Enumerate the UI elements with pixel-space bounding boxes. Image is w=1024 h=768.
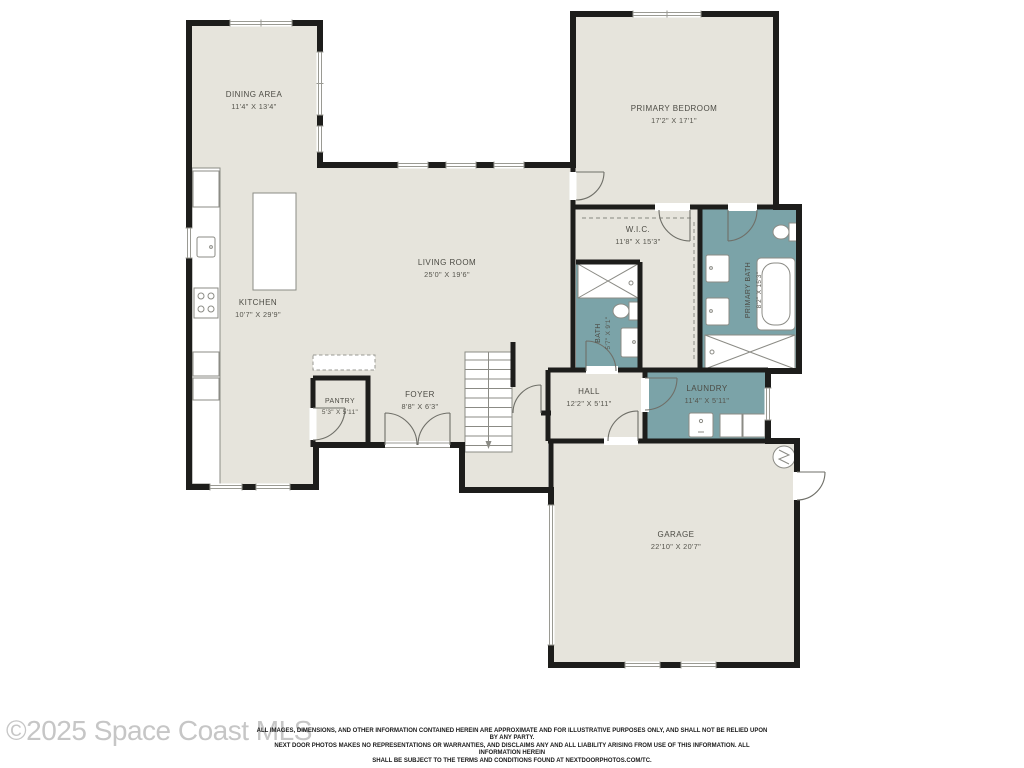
laundry-fixtures [689,413,765,437]
kitchen-counter [192,168,220,484]
disclaimer-line-3: SHALL BE SUBJECT TO THE TERMS AND CONDIT… [253,758,771,765]
fridge-nook [313,355,375,370]
footer: ©2025 Space Coast MLS ALL IMAGES, DIMENS… [0,712,1024,762]
primary-bedroom-dims: 17'2" X 17'1" [651,116,697,125]
window-laundry-right [765,388,772,420]
garage-dims: 22'10" X 20'7" [651,542,701,551]
window-kitchen-bottom-2 [256,484,290,491]
window-kitchen-left [186,228,193,258]
window-dining-right-1 [317,52,324,115]
laundry-dims: 11'4" X 5'11" [685,396,730,405]
foyer-dims: 8'8" X 6'3" [402,402,439,411]
cabinet-icon [193,378,219,400]
primary-bath-dims: 8'2" X 15'3" [756,272,763,309]
door-garage-exterior [797,472,825,500]
window-garage-left [548,505,555,645]
shower-icon [705,335,795,369]
disclaimer-line-1: ALL IMAGES, DIMENSIONS, AND OTHER INFORM… [253,728,771,743]
water-heater-icon [773,446,795,468]
foyer-label: FOYER [405,390,435,399]
dining-dims: 11'4" X 13'4" [231,102,276,111]
dryer-icon [743,414,765,437]
window-living-top-1 [398,162,428,169]
floor-plan: DINING AREA 11'4" X 13'4" KITCHEN 10'7" … [0,0,1024,768]
laundry-label: LAUNDRY [686,384,727,393]
washer-icon [720,414,742,437]
kitchen-label: KITCHEN [239,298,277,307]
stairs [465,352,512,452]
window-bedroom-top [633,11,701,18]
floor-garage [551,441,797,665]
page: { "colors": { "background": "#ffffff", "… [0,0,1024,768]
shower-icon [578,264,638,298]
dining-label: DINING AREA [226,90,283,99]
wic-dims: 11'8" X 15'3" [615,237,660,246]
toilet-icon [773,223,797,241]
primary-bedroom-label: PRIMARY BEDROOM [631,104,717,113]
window-garage-bottom-1 [625,662,660,669]
range-icon [194,288,218,318]
garage-label: GARAGE [658,530,695,539]
wic-label: W.I.C. [626,225,650,234]
disclaimer-line-2: NEXT DOOR PHOTOS MAKES NO REPRESENTATION… [253,743,771,758]
hall-dims: 12'2" X 5'11" [566,399,611,408]
window-living-top-2 [446,162,476,169]
sink-icon [621,328,639,357]
hall-label: HALL [578,387,600,396]
cabinet-icon [193,352,219,376]
laundry-sink-icon [689,413,713,437]
pantry-label: PANTRY [325,398,355,405]
window-dining-right-2 [317,126,324,152]
living-room-dims: 25'0" X 19'6" [424,270,470,279]
living-room-label: LIVING ROOM [418,258,476,267]
disclaimer: ALL IMAGES, DIMENSIONS, AND OTHER INFORM… [253,728,771,765]
bath-dims: 5'7" X 9'1" [605,317,612,350]
window-living-top-3 [494,162,524,169]
window-kitchen-bottom-1 [210,484,242,491]
window-garage-bottom-2 [681,662,716,669]
fridge-icon [193,171,219,207]
primary-bath-label: PRIMARY BATH [745,262,752,318]
pantry-dims: 5'3" X 5'11" [322,409,358,416]
toilet-icon [613,302,638,320]
window-dining-top [230,20,292,27]
bath-label: BATH [595,323,602,343]
kitchen-dims: 10'7" X 29'9" [235,310,281,319]
kitchen-island [253,193,296,290]
